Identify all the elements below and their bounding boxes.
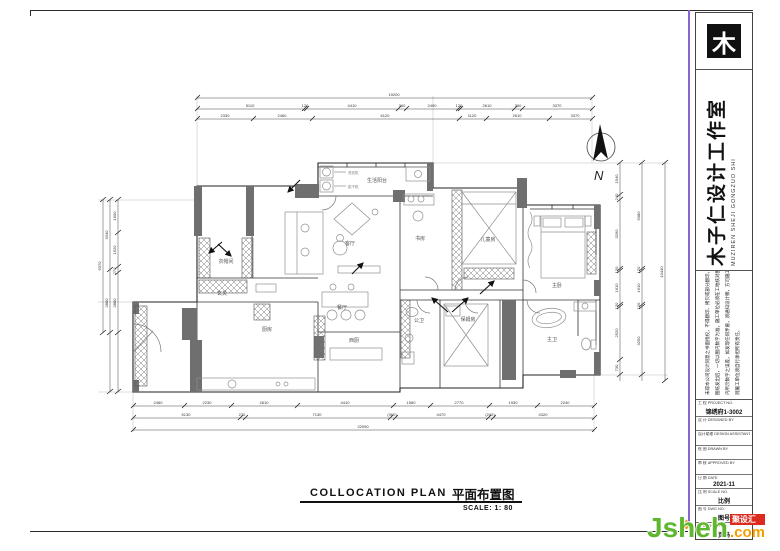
room-label-dining: 餐厅 — [337, 304, 347, 311]
info-row: 比 例 SCALE NO. 比例 — [696, 489, 752, 506]
dim-label: 10440 — [659, 266, 664, 278]
room-label-kitchen: 厨房 — [262, 326, 272, 333]
drawing-scale: SCALE: 1: 80 — [463, 505, 513, 512]
callout-dryer: 烘干机 — [348, 184, 359, 189]
room-label-masterbath: 主卫 — [547, 336, 557, 343]
dim-label: 7130 — [313, 412, 323, 417]
room-label-balcony: 生活阳台 — [367, 177, 387, 184]
info-value: 2021-11 — [698, 482, 750, 488]
title-block: 木 木子仁设计工作室 MUZIREN SHEJI GONGZUO SHI 未得本… — [695, 12, 753, 540]
dim-label: 1610 — [614, 283, 619, 293]
dim-label: 5080 — [636, 211, 641, 221]
dim-label: 120 — [614, 302, 619, 309]
watermark-tld: .com — [730, 525, 765, 540]
room-label-nanny: 保姆房 — [460, 316, 475, 323]
disclaimer-line: 内所示数字之误差，如发现任何矛盾，须通知设计师，方可施工，否 — [723, 275, 733, 395]
dim-label: 2880 — [104, 298, 109, 308]
logo-section: 木 — [696, 13, 752, 70]
company-name-cn: 木子仁设计工作室 — [702, 74, 729, 266]
info-label: 工 程 PROJECT NO. — [698, 401, 750, 406]
info-row: 设 计 DESIGNED BY — [696, 417, 752, 431]
dim-label: 120 — [456, 103, 463, 108]
dim-label: 2610 — [260, 400, 270, 405]
dimension-lines — [100, 95, 668, 432]
info-label: 审 核 APPROVED BY — [698, 461, 750, 466]
dim-label: 2460 — [154, 400, 164, 405]
dim-label: (360) — [387, 412, 397, 417]
dim-label: 360 — [515, 103, 522, 108]
dim-label: 2490 — [428, 103, 438, 108]
info-row: 审 核 APPROVED BY — [696, 460, 752, 474]
room-label-master: 主卧 — [552, 282, 562, 289]
dim-label: 3250 — [636, 336, 641, 346]
dim-label: 2240 — [561, 400, 571, 405]
room-label-guestbath: 公卫 — [414, 318, 424, 324]
dim-label: 19200 — [388, 92, 400, 97]
dim-label: 1600 — [112, 211, 117, 221]
watermark: Jsheh 聚设汇 .com — [647, 513, 765, 543]
watermark-brand: Jsheh — [647, 513, 728, 543]
cabinet-hatches — [135, 190, 596, 386]
dim-label: 3340 — [104, 230, 109, 240]
dim-label: 3370 — [553, 103, 563, 108]
north-label: N — [594, 168, 604, 183]
info-label: 绘 图 DRAWN BY — [698, 447, 750, 452]
room-label-westkitchen: 西厨 — [349, 338, 359, 344]
dim-label: 6370 — [97, 261, 102, 271]
disclaimer-line: 则施工单位须自行承担所有责任。 — [733, 275, 743, 395]
dim-label: 1620 — [112, 245, 117, 255]
room-label-kids: 儿童房 — [480, 236, 495, 243]
dimension-labels-top: 19200 5110 120 4410 360 2490 120 2610 36… — [221, 92, 581, 118]
info-row: 设计助理 DESIGN ASSISTANT — [696, 431, 752, 445]
info-value: 比例 — [698, 496, 750, 505]
info-row: 绘 图 DRAWN BY — [696, 446, 752, 460]
dim-label: 4410 — [341, 400, 351, 405]
title-underline — [300, 501, 522, 503]
dim-label: 240 — [614, 193, 619, 200]
dim-label: 3370 — [571, 113, 581, 118]
dim-label: (240) — [485, 412, 495, 417]
north-arrow: N — [587, 124, 615, 183]
info-label: 设计助理 DESIGN ASSISTANT — [698, 432, 750, 437]
dim-label: 270 — [112, 267, 117, 274]
dim-label: 2880 — [112, 298, 117, 308]
dim-label: 1610 — [636, 283, 641, 293]
dim-label: 120 — [636, 266, 641, 273]
dim-label: 5130 — [182, 412, 192, 417]
dim-label: 2610 — [513, 113, 523, 118]
dim-label: 360 — [399, 103, 406, 108]
extension-lines — [98, 96, 668, 432]
dim-label: 4410 — [348, 103, 358, 108]
info-value: 锦绣府1-3002 — [698, 407, 750, 416]
disclaimer-line: 未得本公司设计同意之书面授权，不得翻印、拷贝或部分翻印，切勿以此 — [703, 275, 713, 395]
company-section: 木子仁设计工作室 MUZIREN SHEJI GONGZUO SHI — [696, 70, 752, 271]
dim-label: 2460 — [278, 113, 288, 118]
dim-label: 1930 — [509, 400, 519, 405]
callout-washer: 洗衣机 — [348, 170, 359, 175]
info-row: 日 期 DATE 2021-11 — [696, 475, 752, 489]
dim-label: 2520 — [614, 328, 619, 338]
dim-label: 2610 — [483, 103, 493, 108]
dim-label: 3290 — [614, 229, 619, 239]
dimension-labels-bottom: 2460 2230 2610 4410 1560 2770 1930 2240 … — [154, 400, 571, 429]
dim-label: 2330 — [221, 113, 231, 118]
dim-label: 120 — [636, 302, 641, 309]
drawing-title-en: COLLOCATION PLAN — [310, 487, 447, 499]
company-logo-icon: 木 — [707, 24, 741, 58]
dim-label: 120 — [614, 266, 619, 273]
dim-label: 6120 — [381, 113, 391, 118]
dim-label: 22090 — [357, 424, 369, 429]
room-label-cloak: 衣帽间 — [218, 258, 233, 265]
room-label-study: 书房 — [415, 235, 425, 242]
info-row: 工 程 PROJECT NO. 锦绣府1-3002 — [696, 400, 752, 417]
dim-label: 1560 — [407, 400, 417, 405]
interior-walls — [197, 186, 600, 392]
drawing-sheet: 19200 5110 120 4410 360 2490 120 2610 36… — [0, 0, 780, 551]
company-name-en: MUZIREN SHEJI GONGZUO SHI — [731, 74, 737, 266]
disclaimer-section: 未得本公司设计同意之书面授权，不得翻印、拷贝或部分翻印，切勿以此 图纸发出后，一… — [696, 271, 752, 400]
dim-label: 1540 — [614, 174, 619, 184]
dimension-labels-left: 1600 1620 270 2880 3340 2880 6370 — [97, 211, 117, 308]
dim-label: 120 — [302, 103, 309, 108]
room-label-foyer: 玄关 — [217, 290, 227, 297]
dim-label: 730 — [614, 364, 619, 371]
discla imer-line: 图纸发出后，一切以图内数字为准，施工单位必须在工地核对图纸 — [713, 275, 723, 395]
room-label-living: 客厅 — [345, 240, 355, 247]
dim-label: 4470 — [437, 412, 447, 417]
dim-label: 2230 — [203, 400, 213, 405]
info-label: 日 期 DATE — [698, 476, 750, 481]
dim-label: 270 — [239, 412, 246, 417]
dim-label: 5110 — [246, 103, 255, 108]
info-label: 设 计 DESIGNED BY — [698, 418, 750, 423]
dim-label: 1120 — [468, 113, 477, 118]
dim-label: 2770 — [455, 400, 465, 405]
floor-plan-canvas: 19200 5110 120 4410 360 2490 120 2610 36… — [0, 0, 780, 551]
dim-label: 4320 — [539, 412, 549, 417]
dimension-labels-right: 1540 240 3290 120 1610 120 2520 730 5080… — [614, 174, 664, 372]
info-label: 比 例 SCALE NO. — [698, 490, 750, 495]
